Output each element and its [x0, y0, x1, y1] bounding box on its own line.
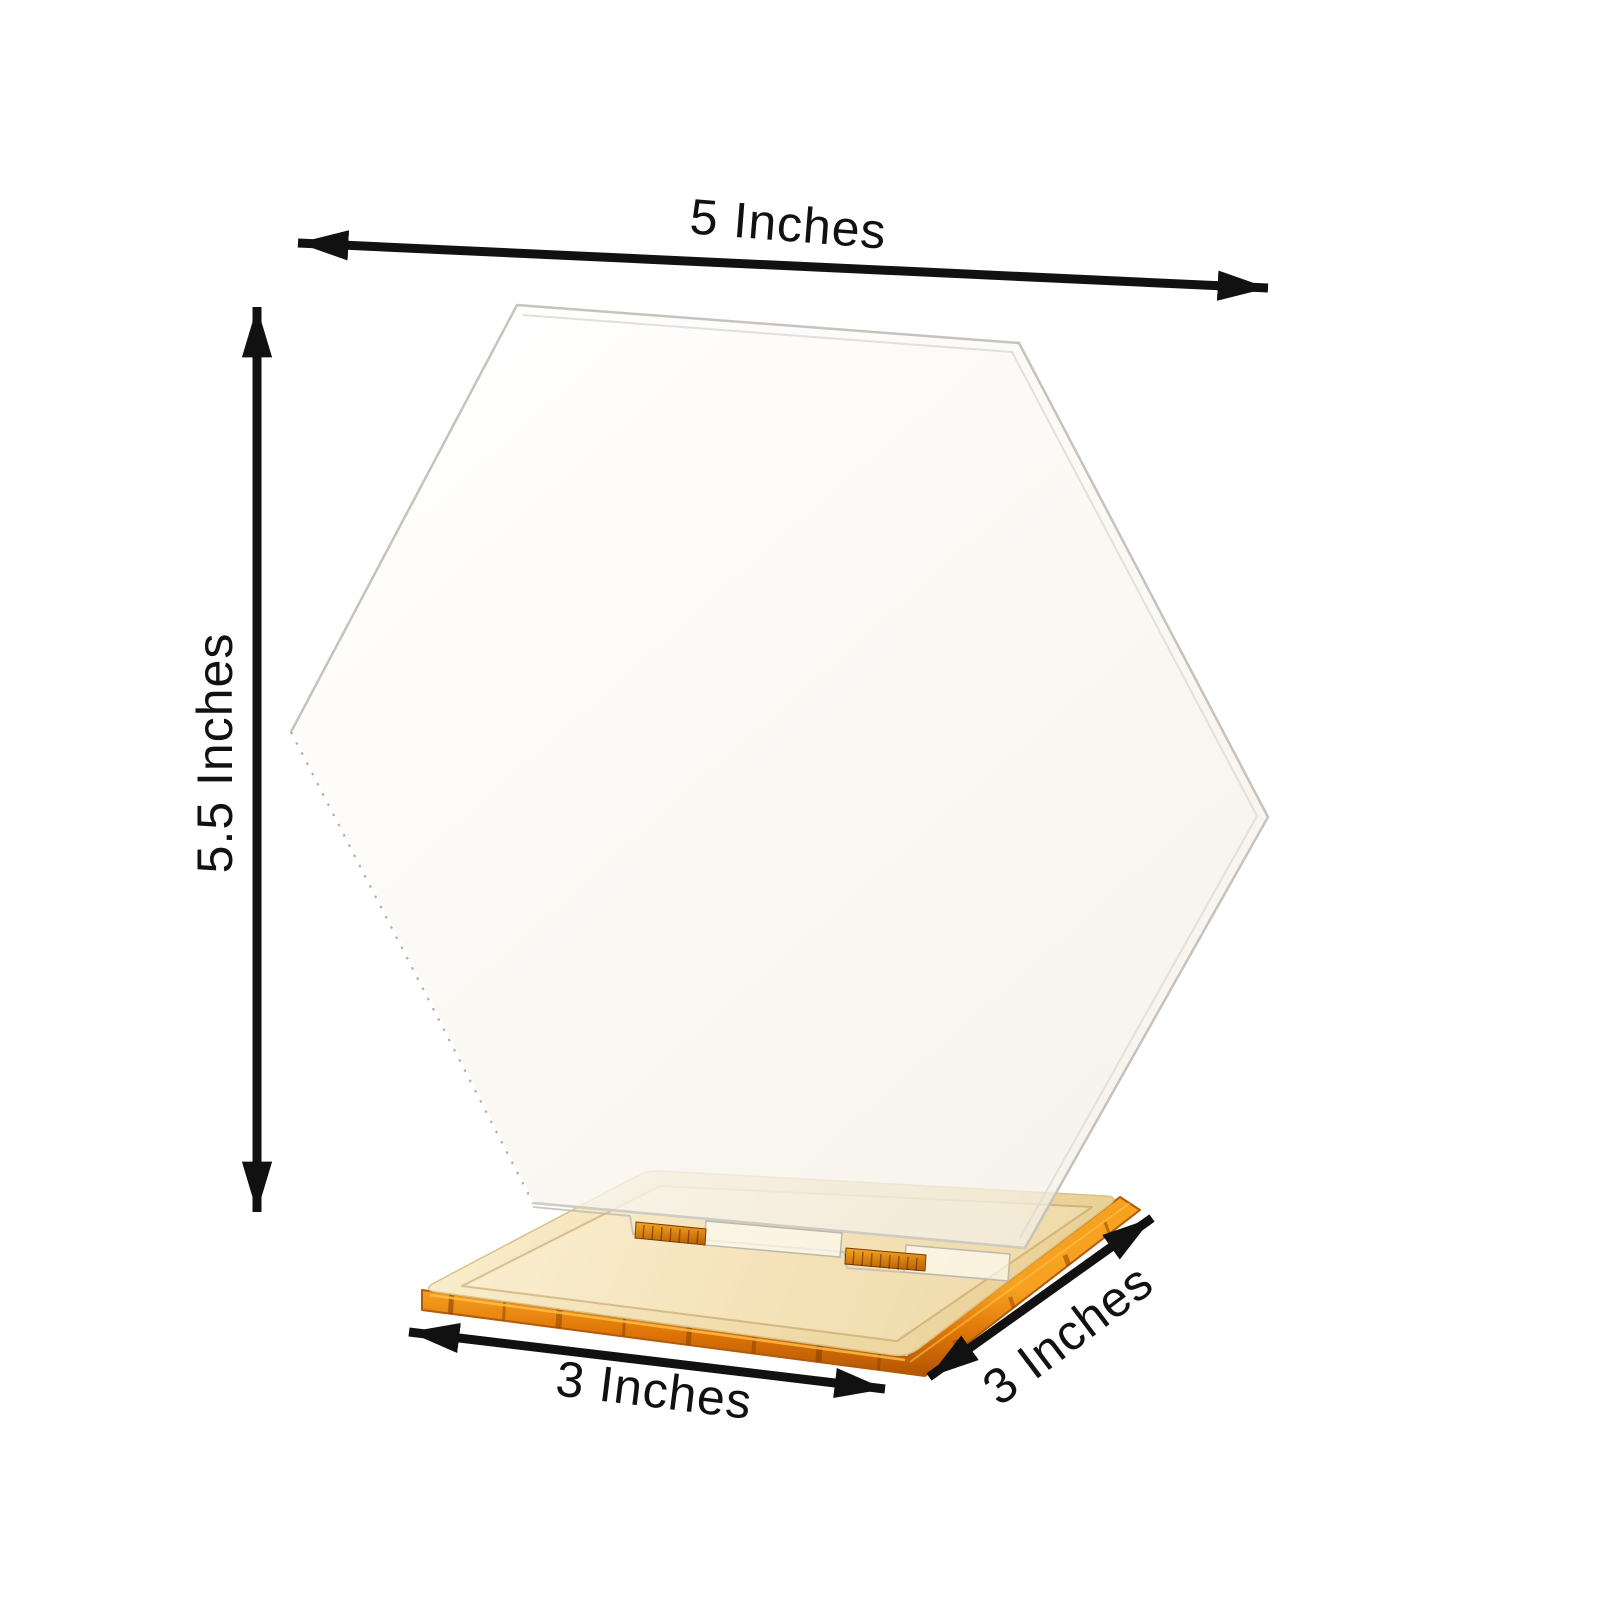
product-dimension-figure: 5 Inches 5.5 Inches 3 Inches 3 Inches: [0, 0, 1600, 1600]
acrylic-hexagon-sign: [291, 305, 1268, 1248]
width-dimension-label: 5 Inches: [688, 188, 889, 259]
hexagon-panel: [291, 305, 1268, 1248]
base-width-dimension-label: 3 Inches: [553, 1350, 755, 1430]
figure-canvas: 5 Inches 5.5 Inches 3 Inches 3 Inches: [0, 0, 1600, 1600]
height-dimension-label: 5.5 Inches: [187, 633, 243, 874]
